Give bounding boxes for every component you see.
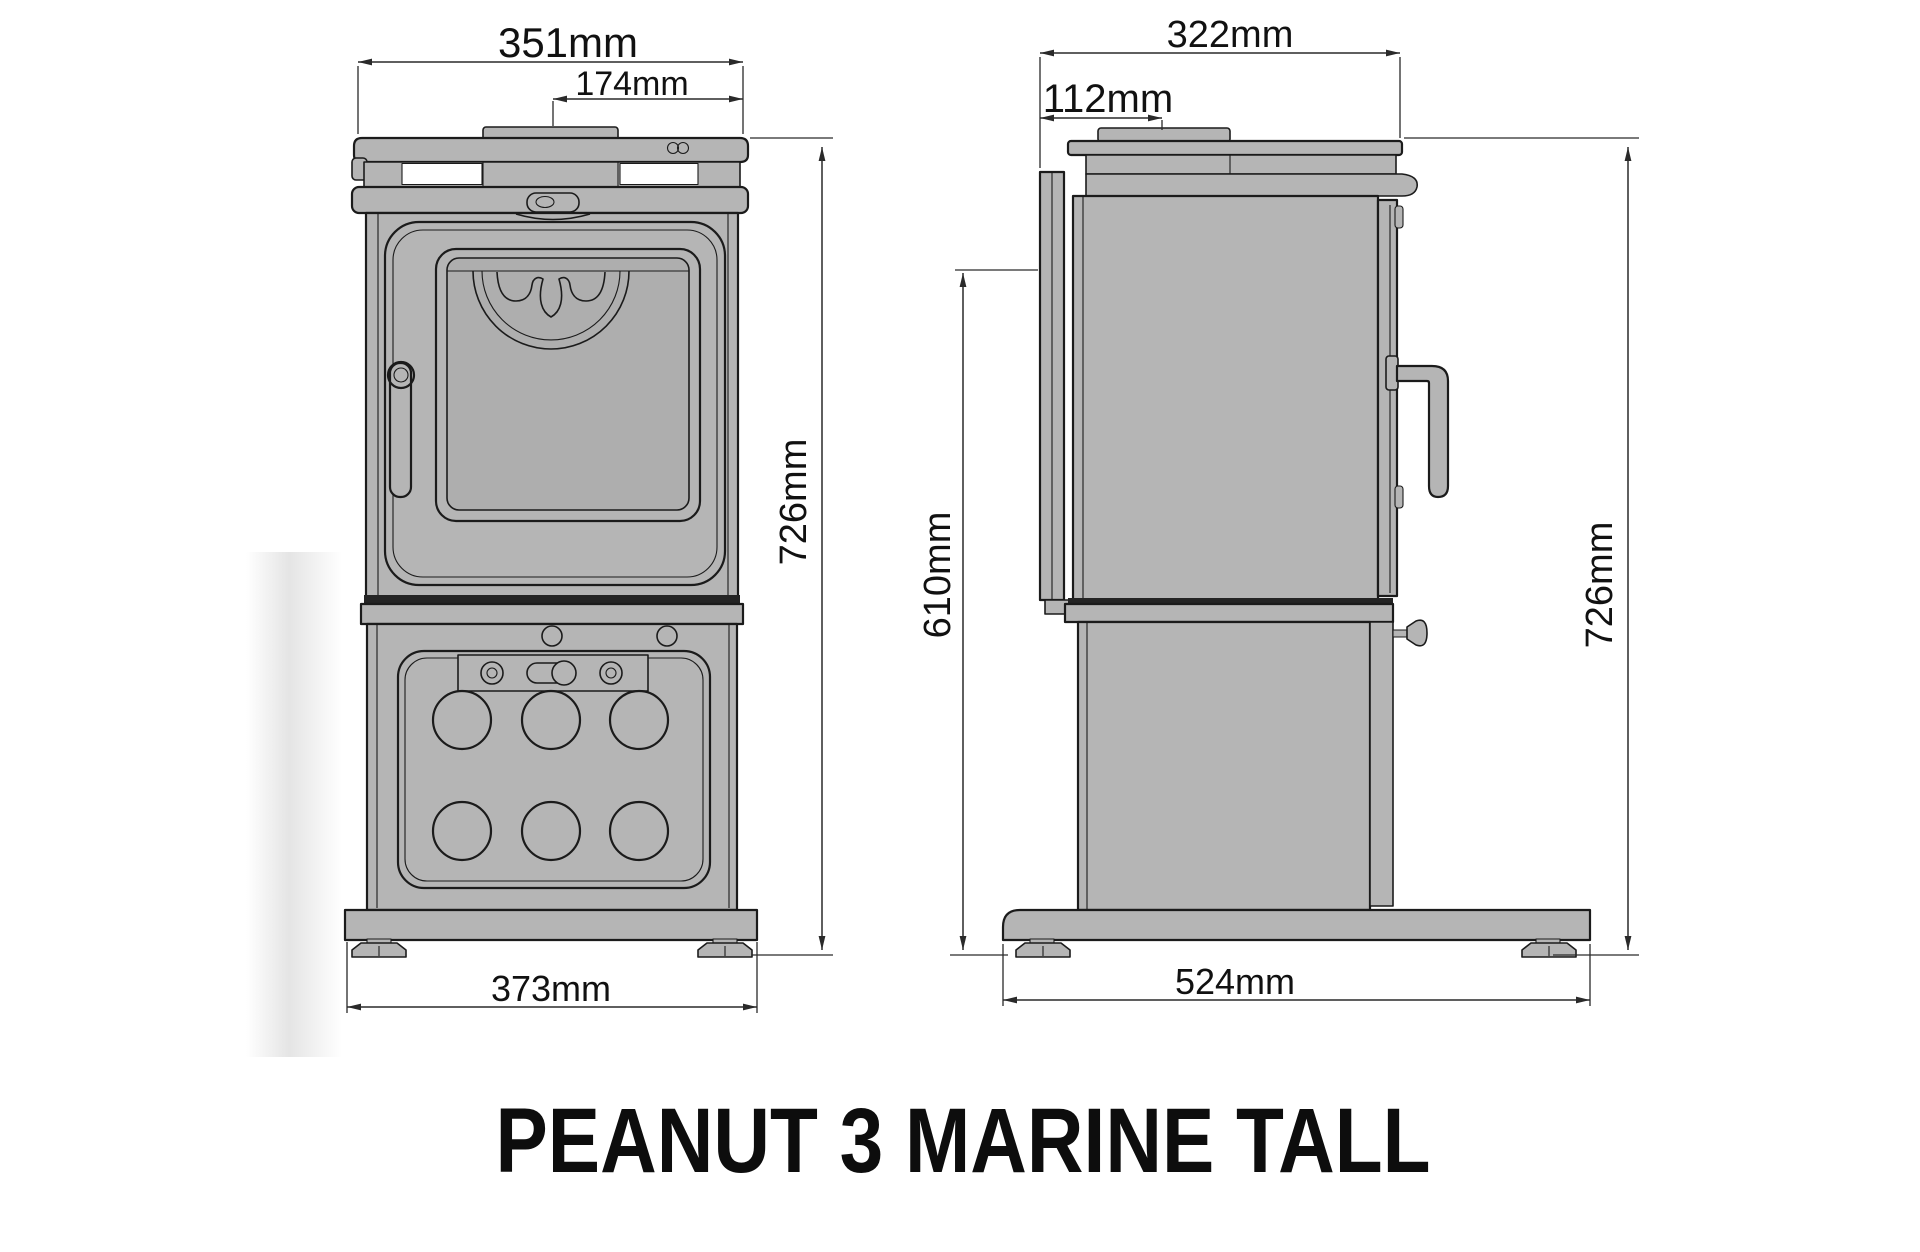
dim-side-flue-label: 112mm [1043,77,1173,121]
dim-front-height-label: 726mm [773,439,815,566]
dim-side-base-label: 524mm [1175,961,1295,1002]
side-latch-stem [1393,630,1408,637]
technical-drawing-canvas: 351mm 174mm 726mm 373mm [0,0,1920,1252]
front-tier-slot-left [402,164,482,185]
front-cabinet-bolt-left [542,626,562,646]
front-foot-right [698,939,752,957]
drawing-sheet: 351mm 174mm 726mm 373mm [0,0,1920,1252]
front-divider-shadow [364,595,740,604]
side-base-cabinet [1078,622,1370,910]
side-plate-tier [1086,155,1396,174]
dim-front-flue-label: 174mm [575,65,688,103]
front-screw-right [600,662,622,684]
dim-side-shield-label: 610mm [917,512,959,639]
side-cabinet-front-panel [1370,622,1393,906]
front-cabinet-bolt-right [657,626,677,646]
front-screw-left [481,662,503,684]
side-door-edge [1378,200,1397,596]
side-hinge-bottom [1395,486,1403,508]
side-plinth [1003,910,1590,940]
front-air-slider-knob [552,661,576,685]
front-top-plate [354,138,748,162]
side-foot-rear [1016,939,1070,957]
front-plinth [345,910,757,940]
side-hinge-top [1395,206,1403,228]
side-door-handle [1397,366,1448,497]
scan-shadow [246,552,342,1057]
side-divider-rail [1065,604,1393,622]
side-top-plate [1068,141,1402,155]
side-latch-knob [1407,620,1427,646]
dim-front-base-label: 373mm [491,968,611,1009]
front-door-handle-bar [390,363,411,497]
front-divider-rail [361,604,743,624]
dim-front-top-width-label: 351mm [498,19,638,66]
dim-side-depth-label: 322mm [1167,14,1294,56]
drawing-title: PEANUT 3 MARINE TALL [496,1090,1431,1192]
front-view [246,127,757,1057]
front-door-latch [527,193,579,212]
side-view [1003,128,1590,957]
side-top-rail [1086,174,1417,196]
front-tier-slot-right [620,164,698,185]
side-foot-front [1522,939,1576,957]
dim-side-height-label: 726mm [1579,522,1621,649]
side-firebox-body [1073,196,1378,600]
front-foot-left [352,939,406,957]
front-window-glass [447,258,689,510]
